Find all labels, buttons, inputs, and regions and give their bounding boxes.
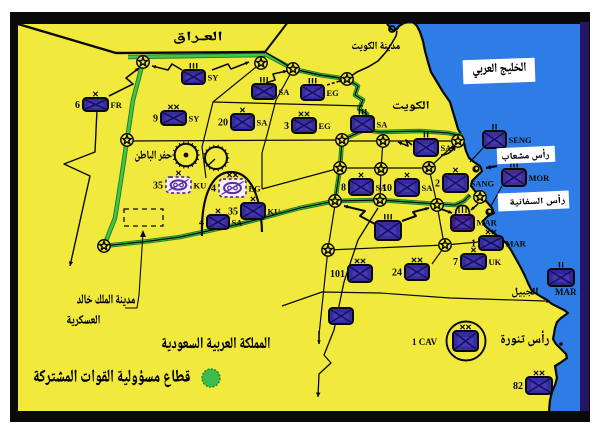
svg-text:EG: EG: [249, 184, 262, 194]
svg-text:SA: SA: [232, 218, 244, 228]
svg-text:SA: SA: [279, 87, 291, 97]
svg-text:KU: KU: [268, 207, 281, 217]
svg-text:SA: SA: [441, 143, 453, 153]
svg-text:4: 4: [211, 184, 216, 195]
svg-text:82: 82: [513, 381, 523, 392]
svg-text:7: 7: [453, 257, 458, 268]
svg-text:SY: SY: [208, 73, 219, 83]
svg-text:9: 9: [153, 114, 158, 125]
svg-text:4: 4: [199, 218, 204, 229]
svg-text:MAR: MAR: [477, 218, 498, 228]
svg-text:SANG: SANG: [471, 179, 495, 189]
svg-text:3: 3: [284, 121, 289, 132]
svg-text:MAR: MAR: [506, 239, 527, 249]
svg-text:SENG: SENG: [509, 135, 533, 145]
svg-text:SA: SA: [377, 120, 389, 130]
svg-text:2: 2: [435, 179, 440, 190]
svg-text:KU: KU: [194, 181, 207, 191]
svg-text:8: 8: [341, 183, 346, 194]
svg-text:UK: UK: [489, 257, 502, 267]
svg-text:6: 6: [75, 100, 80, 111]
svg-text:SA: SA: [257, 118, 269, 128]
svg-text:10: 10: [382, 183, 392, 194]
svg-text:35: 35: [228, 207, 238, 218]
svg-text:20: 20: [218, 118, 228, 129]
svg-text:35: 35: [153, 181, 163, 192]
svg-text:SA: SA: [422, 183, 434, 193]
svg-text:MAR: MAR: [555, 287, 577, 297]
svg-text:101: 101: [330, 269, 345, 280]
svg-text:MOR: MOR: [529, 173, 551, 183]
svg-text:SY: SY: [189, 114, 200, 124]
svg-text:24: 24: [392, 268, 402, 279]
svg-text:FR: FR: [111, 100, 123, 110]
svg-text:1 CAV: 1 CAV: [412, 337, 438, 347]
svg-text:EG: EG: [327, 88, 340, 98]
svg-text:EG: EG: [319, 121, 332, 131]
